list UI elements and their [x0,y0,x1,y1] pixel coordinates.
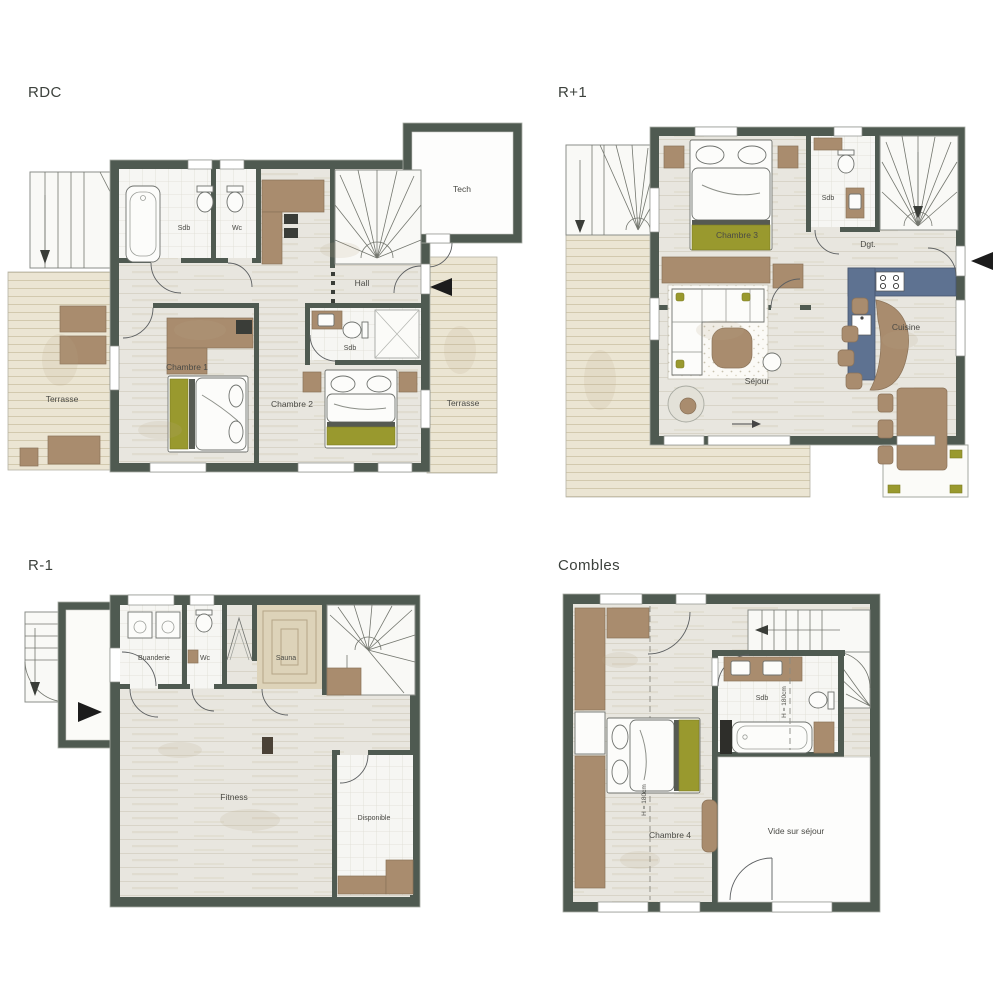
room-label-chambre1: Chambre 1 [166,362,208,372]
interior-staircase [880,136,958,230]
floor-plan-rm1: R-1 [25,557,420,907]
room-label-chambre4: Chambre 4 [649,830,691,840]
floor-title-rdc: RDC [28,84,62,101]
sun-lounger [60,306,106,332]
wc-floor [216,169,256,258]
room-label-sdb: Sdb [178,225,191,232]
bathtub [126,186,160,262]
cooktop [876,272,904,291]
wardrobe [607,608,649,638]
plans-canvas: RDC Terrasse Terrasse Tech [0,0,1000,1000]
floorplan-sheet: { "document": {"type": "chalet-floor-pla… [0,0,1000,1000]
room-label-cuisine: Cuisine [892,322,921,332]
wardrobe [575,756,605,888]
room-label-fitness: Fitness [220,792,247,802]
wardrobe [575,608,605,710]
under-stair-cabinet [327,668,361,695]
desk [773,264,803,288]
bar-chair [838,350,854,366]
room-label-buanderie: Buanderie [138,655,170,662]
shower [375,310,419,358]
room-label-hall: Hall [355,278,370,288]
room-label-sejour: Séjour [745,376,770,386]
bar-chair [852,298,868,314]
disponible-room [337,755,413,895]
room-label-sdb: Sdb [822,195,835,202]
floor-title-combles: Combles [558,557,620,574]
bar-chair [842,326,858,342]
bed [168,376,248,452]
fitness-equipment [262,737,273,754]
floor-plan-r1: R+1 [558,84,993,497]
bench [702,800,717,852]
floor-plan-rdc: RDC Terrasse Terrasse Tech [8,84,522,473]
toilet [227,186,243,212]
toilet [197,186,213,212]
room-label-sauna: Sauna [276,655,296,662]
mini-sink [188,650,198,663]
toilet [343,322,368,338]
chair [878,394,893,412]
exterior-staircase [566,145,652,235]
sideboard [662,257,770,283]
bath-shelf [814,722,834,753]
toilet [838,150,854,173]
floor-title-rm1: R-1 [28,557,53,574]
room-label-disponible: Disponible [358,815,391,822]
room-label-sdb: Sdb [756,695,769,702]
bathtub [732,722,812,753]
room-label-tech: Tech [453,184,471,194]
windows-rm1 [128,595,214,605]
side-table [763,353,781,371]
toilet [809,692,834,709]
dining-table [897,388,947,470]
dining-set [878,388,947,470]
chair [878,446,893,464]
interior-staircase [327,605,415,695]
height-annotation: H = 180cm [781,686,788,718]
floor-title-r1: R+1 [558,84,587,101]
room-label-chambre2: Chambre 2 [271,399,313,409]
floor-plan-combles: Combles [558,557,880,912]
room-label-vide: Vide sur séjour [768,826,825,836]
terrace-stool [20,448,38,466]
chair [878,420,893,438]
bath-cabinet [720,720,732,754]
terrace-table [48,436,100,464]
room-label-terrasse-right: Terrasse [447,398,480,408]
entrance-arrow-icon [971,252,993,270]
bar-chair [846,373,862,389]
room-label-sdb2: Sdb [344,345,357,352]
armchair [668,386,704,422]
height-annotation: H = 180cm [641,784,648,816]
chambre2-bathroom [310,308,421,361]
room-label-wc: Wc [200,655,211,662]
sauna [257,605,322,689]
room-label-wc: Wc [232,225,243,232]
bed [607,718,700,793]
room-label-chambre3: Chambre 3 [716,230,758,240]
room-label-terrasse-left: Terrasse [46,394,79,404]
room-label-dgt: Dgt. [860,239,876,249]
